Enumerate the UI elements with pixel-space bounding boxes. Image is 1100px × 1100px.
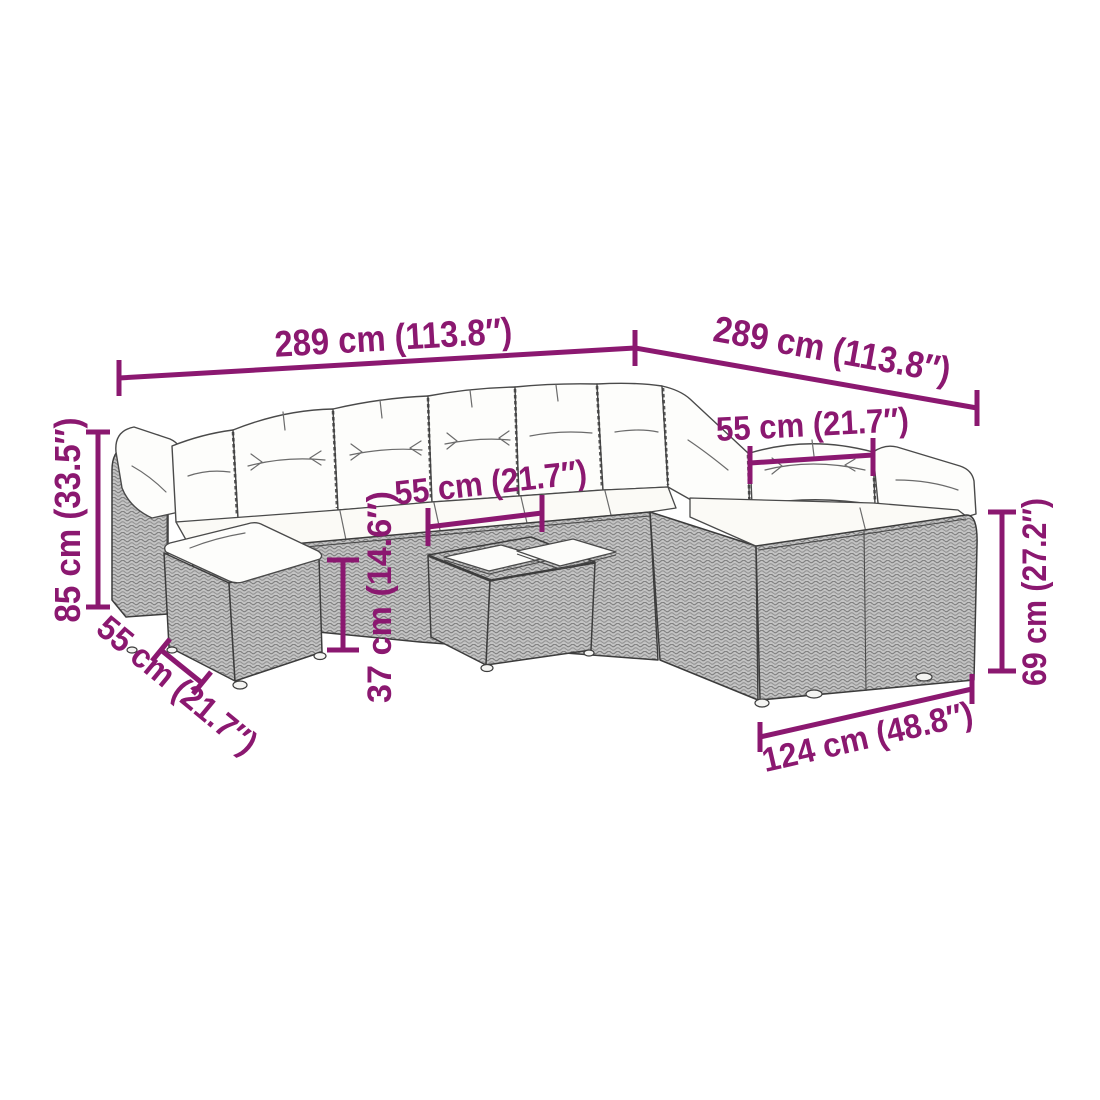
dim-label-backrest-height: 69 cm (27.2″) bbox=[1016, 498, 1054, 686]
back-cushion bbox=[233, 409, 338, 518]
sofa-foot bbox=[755, 699, 769, 707]
coffee-table bbox=[428, 537, 616, 672]
table-front-face bbox=[486, 563, 595, 665]
ottoman-foot bbox=[314, 653, 326, 660]
dim-overall-width-left: 289 cm (113.8″) bbox=[119, 310, 635, 396]
dim-label-right-module-length: 124 cm (48.8″) bbox=[759, 695, 977, 780]
back-cushion bbox=[172, 430, 238, 523]
dim-label-seat-width: 55 cm (21.7″) bbox=[715, 401, 910, 449]
sofa-foot bbox=[806, 690, 822, 698]
table-foot bbox=[481, 665, 493, 672]
sofa-base-right bbox=[756, 515, 977, 700]
dim-overall-height: 85 cm (33.5″) bbox=[47, 418, 110, 623]
dim-backrest-height: 69 cm (27.2″) bbox=[988, 498, 1054, 686]
product-diagram: 289 cm (113.8″) 289 cm (113.8″) 55 cm (2… bbox=[0, 0, 1100, 1100]
sofa-foot bbox=[916, 673, 932, 681]
ottoman-foot bbox=[167, 647, 177, 653]
ottoman bbox=[164, 523, 326, 689]
dim-label-table-height: 37 cm (14.6″) bbox=[361, 491, 399, 703]
back-cushion bbox=[750, 444, 875, 506]
ottoman-foot bbox=[233, 681, 247, 689]
back-cushion bbox=[597, 383, 668, 490]
sofa-dimension-illustration: 289 cm (113.8″) 289 cm (113.8″) 55 cm (2… bbox=[0, 0, 1100, 1100]
dim-label-overall-depth-right: 289 cm (113.8″) bbox=[710, 308, 953, 391]
table-foot bbox=[584, 650, 594, 656]
right-front-panel bbox=[756, 515, 977, 700]
dim-label-overall-height: 85 cm (33.5″) bbox=[47, 418, 88, 623]
